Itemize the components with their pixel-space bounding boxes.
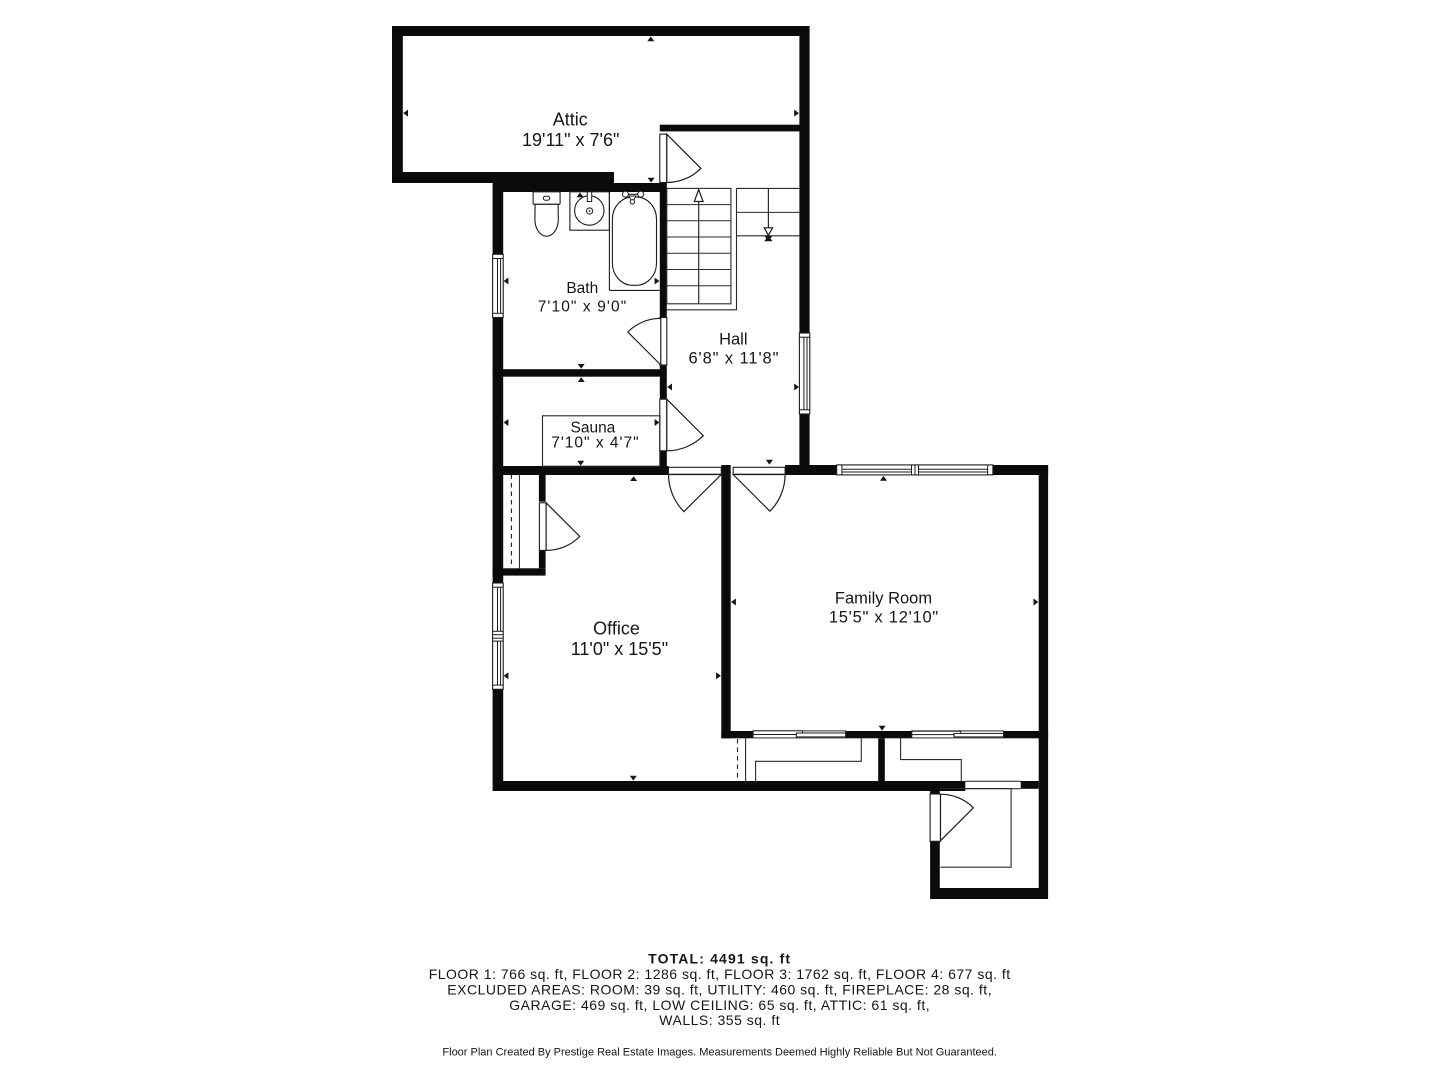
svg-text:FLOOR 1: 766 sq. ft, FLOOR 2:: FLOOR 1: 766 sq. ft, FLOOR 2: 1286 sq. f… [429, 966, 1011, 982]
svg-text:7'10" x 9'0": 7'10" x 9'0" [538, 299, 628, 316]
svg-text:Attic: Attic [553, 110, 588, 130]
svg-text:6'8" x 11'8": 6'8" x 11'8" [688, 350, 779, 368]
svg-text:Bath: Bath [566, 280, 598, 297]
svg-text:Floor Plan Created By Prestige: Floor Plan Created By Prestige Real Esta… [442, 1047, 997, 1059]
svg-text:Office: Office [593, 618, 640, 638]
svg-text:Hall: Hall [719, 330, 747, 348]
svg-text:GARAGE: 469 sq. ft, LOW CEILIN: GARAGE: 469 sq. ft, LOW CEILING: 65 sq. … [509, 997, 930, 1013]
svg-text:7'10" x 4'7": 7'10" x 4'7" [551, 435, 639, 452]
svg-text:TOTAL: 4491 sq. ft: TOTAL: 4491 sq. ft [648, 951, 791, 967]
svg-text:EXCLUDED AREAS: ROOM: 39 sq. f: EXCLUDED AREAS: ROOM: 39 sq. ft, UTILITY… [447, 982, 992, 998]
svg-text:11'0" x 15'5": 11'0" x 15'5" [571, 639, 668, 659]
svg-text:Family Room: Family Room [835, 589, 932, 607]
svg-text:19'11" x 7'6": 19'11" x 7'6" [522, 130, 619, 150]
svg-text:WALLS: 355 sq. ft: WALLS: 355 sq. ft [659, 1012, 780, 1028]
svg-text:15'5" x 12'10": 15'5" x 12'10" [829, 608, 939, 626]
